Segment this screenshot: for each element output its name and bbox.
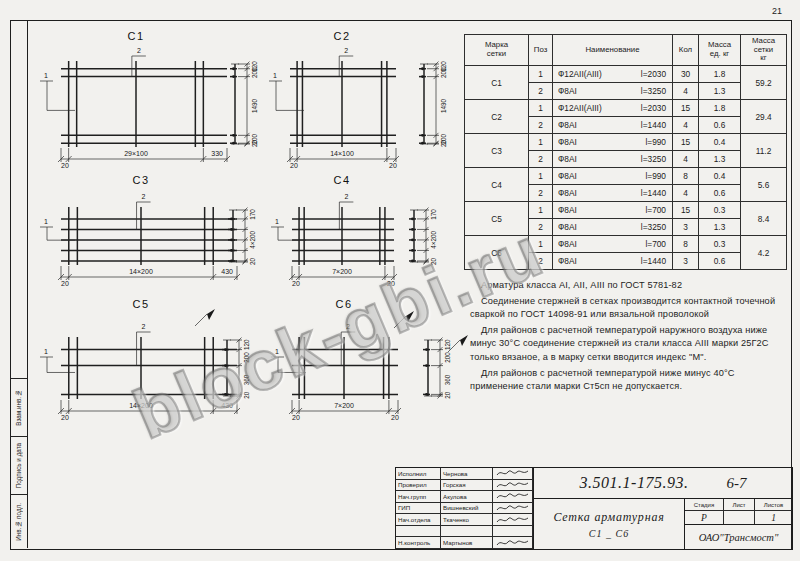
title-block: ИсполнилЧерноваПроверилГорскаяНач.группА… — [395, 467, 793, 550]
signature-icon — [495, 480, 531, 490]
pos-cell: 1 — [529, 100, 553, 117]
unit-mass-cell: 0.4 — [699, 134, 741, 151]
mesh-mass-cell: 11.2 — [741, 134, 787, 168]
note-paragraph: Для районов с расчетной температурой нар… — [470, 324, 788, 365]
column-header: Масса сетки кг — [741, 35, 787, 66]
dim-label: 14×200 — [129, 402, 153, 409]
qty-cell: 8 — [673, 168, 699, 185]
signature-icon — [495, 491, 531, 501]
mesh-title: С6 — [335, 298, 352, 310]
signature-role: Нач.групп — [396, 491, 441, 503]
mesh-drawing-3: С3122014×2004301704×20020 — [35, 170, 265, 292]
weld-symbol-icon — [406, 311, 414, 322]
signature-cell — [493, 480, 533, 492]
note-paragraph: Для районов с расчетной температурой ниж… — [470, 367, 788, 394]
dim-label: 29×100 — [124, 150, 148, 157]
signature-cell — [493, 514, 533, 526]
mark-cell: С2 — [465, 100, 529, 134]
note-paragraph: Соединение стержней в сетках производитс… — [470, 295, 788, 322]
leader-label-2: 2 — [346, 323, 350, 330]
sheet-header: Лист — [724, 499, 755, 510]
dim-label: 1490 — [440, 98, 447, 113]
signature-icon — [495, 468, 531, 478]
mesh-title: С3 — [132, 174, 149, 186]
dim-label: 20 — [61, 280, 69, 287]
dim-label: 20 — [292, 414, 300, 421]
name-cell: Ф8АIl=990 — [553, 168, 673, 185]
unit-mass-cell: 0.6 — [699, 253, 741, 270]
page-number: 21 — [772, 6, 782, 16]
name-cell: Ф8АIl=700 — [553, 236, 673, 253]
signature-cell — [493, 468, 533, 480]
dim-label: 20 — [292, 280, 300, 287]
mesh-drawing-1: С1122029×100330120200149020020 — [35, 26, 265, 176]
pos-cell: 1 — [529, 168, 553, 185]
signature-name: Ткаченко — [441, 514, 493, 526]
mark-cell: С3 — [465, 134, 529, 168]
mark-cell: С1 — [465, 66, 529, 100]
stage-header-row: Стадия Лист Листов — [685, 499, 792, 511]
qty-cell: 4 — [673, 117, 699, 134]
dim-label: 20 — [389, 162, 397, 169]
dim-label: 20 — [61, 162, 69, 169]
dim-label: 20 — [440, 140, 447, 148]
unit-mass-cell: 1.3 — [699, 83, 741, 100]
stamp-label: Инв.№ подл. — [15, 503, 22, 541]
qty-cell: 4 — [673, 83, 699, 100]
column-header: Поз — [529, 35, 553, 66]
stage-header: Стадия — [685, 499, 724, 510]
drawing-title-line2: С1 _ С6 — [589, 528, 629, 539]
mesh-drawing-2: С2122014×10020120200149020020 — [266, 26, 461, 176]
mesh-title: С5 — [132, 298, 149, 310]
dim-label: 4×200 — [249, 231, 256, 249]
organization-name: ОАО"Трансмост" — [685, 525, 792, 549]
note-paragraph: Арматура класса АI, АII, АIII по ГОСТ 57… — [470, 279, 788, 293]
signature-name: Горская — [441, 480, 493, 492]
table-row: С61Ф8АIl=70080.34.2 — [465, 236, 787, 253]
pos-cell: 2 — [529, 253, 553, 270]
signature-name — [441, 526, 493, 538]
qty-cell: 15 — [673, 134, 699, 151]
dim-label: 170 — [430, 209, 437, 220]
mesh-title: С2 — [333, 30, 350, 42]
dim-label: 20 — [290, 162, 298, 169]
dim-label: 200 — [251, 67, 258, 78]
signature-cell — [493, 503, 533, 515]
table-row: С31Ф8АIl=990150.411.2 — [465, 134, 787, 151]
pos-cell: 1 — [529, 202, 553, 219]
leader-label-2: 2 — [142, 193, 146, 200]
weld-symbol-icon — [460, 335, 468, 346]
mesh-drawing-5: С5122014×20043012020036020 — [35, 294, 265, 428]
mesh-mass-cell: 29.4 — [741, 100, 787, 134]
dim-label: 430 — [221, 268, 233, 275]
name-cell: Ф8АIl=3250 — [553, 219, 673, 236]
sheet-value — [724, 511, 755, 524]
column-header: Наименование — [553, 35, 673, 66]
dim-label: 14×200 — [129, 268, 153, 275]
unit-mass-cell: 0.3 — [699, 202, 741, 219]
unit-mass-cell: 0.4 — [699, 168, 741, 185]
table-row: С51Ф8АIl=700150.38.4 — [465, 202, 787, 219]
dim-label: 170 — [249, 209, 256, 220]
dim-label: 20 — [251, 140, 258, 148]
mesh-drawing-6: С612207×2002012020036020 — [266, 294, 476, 428]
leader-label-1: 1 — [275, 348, 279, 355]
signature-icon — [495, 503, 531, 513]
qty-cell: 3 — [673, 219, 699, 236]
unit-mass-cell: 1.8 — [699, 66, 741, 83]
qty-cell: 15 — [673, 100, 699, 117]
leader-label-1: 1 — [44, 72, 48, 79]
column-header: Марка сетки — [465, 35, 529, 66]
weld-symbol-icon — [207, 309, 215, 320]
stage-value: Р — [685, 511, 724, 524]
dim-label: 20 — [387, 280, 395, 287]
qty-cell: 15 — [673, 202, 699, 219]
signature-grid: ИсполнилЧерноваПроверилГорскаяНач.группА… — [396, 468, 534, 549]
signature-role: ГИП — [396, 503, 441, 515]
mesh-title: С4 — [333, 174, 350, 186]
leader-label-2: 2 — [142, 323, 146, 330]
pos-cell: 2 — [529, 151, 553, 168]
signature-role: Нач.отдела — [396, 514, 441, 526]
dim-label: 200 — [444, 352, 451, 363]
signature-role: Исполнил — [396, 468, 441, 480]
mesh-mass-cell: 4.2 — [741, 236, 787, 270]
dim-label: 120 — [444, 339, 451, 350]
stamp-cell-inv: Инв.№ подл. — [10, 494, 27, 549]
unit-mass-cell: 1.3 — [699, 219, 741, 236]
pos-cell: 2 — [529, 117, 553, 134]
name-cell: Ф8АIl=3250 — [553, 83, 673, 100]
leader-label-2: 2 — [344, 47, 348, 54]
mesh-mass-cell: 5.6 — [741, 168, 787, 202]
mark-cell: С6 — [465, 236, 529, 270]
signature-cell — [493, 491, 533, 503]
mesh-mass-cell: 8.4 — [741, 202, 787, 236]
name-cell: Ф8АIl=1440 — [553, 117, 673, 134]
dim-label: 20 — [444, 391, 451, 399]
table-row: С11Ф12АII(АIII)l=2030301.859.2 — [465, 66, 787, 83]
stage-value-row: Р 1 — [685, 511, 792, 525]
signature-icon — [495, 538, 531, 548]
drawing-title-line1: Сетка арматурная — [553, 510, 664, 525]
dim-label: 430 — [221, 402, 233, 409]
dim-label: 4×200 — [430, 231, 437, 249]
dim-label: 360 — [243, 374, 250, 385]
name-cell: Ф8АIl=1440 — [553, 253, 673, 270]
stamp-cell-vzam: Взам.инв.№ — [10, 378, 27, 437]
dim-label: 330 — [211, 150, 223, 157]
qty-cell: 3 — [673, 253, 699, 270]
qty-cell: 4 — [673, 151, 699, 168]
name-cell: Ф12АII(АIII)l=2030 — [553, 100, 673, 117]
leader-label-1: 1 — [273, 72, 277, 79]
dim-label: 20 — [391, 414, 399, 421]
drawing-title: Сетка арматурная С1 _ С6 — [534, 499, 685, 549]
name-cell: Ф8АIl=700 — [553, 202, 673, 219]
dim-label: 1490 — [251, 98, 258, 113]
pos-cell: 2 — [529, 83, 553, 100]
unit-mass-cell: 1.3 — [699, 151, 741, 168]
sheets-total-header: Листов — [755, 499, 792, 510]
signature-role: Проверил — [396, 480, 441, 492]
name-cell: Ф8АIl=3250 — [553, 151, 673, 168]
unit-mass-cell: 0.6 — [699, 185, 741, 202]
dim-label: 20 — [249, 257, 256, 265]
dim-label: 120 — [243, 339, 250, 350]
dim-label: 360 — [444, 374, 451, 385]
signature-name: Мартынов — [441, 537, 493, 549]
stamp-label: Подпись и дата — [15, 443, 22, 488]
dim-label: 20 — [243, 391, 250, 399]
dim-label: 20 — [430, 257, 437, 265]
spec-table: Марка сеткиПозНаименованиеКолМасса ед. к… — [464, 34, 787, 270]
pos-cell: 1 — [529, 134, 553, 151]
dim-label: 20 — [61, 414, 69, 421]
sheet-range: 6-7 — [726, 475, 746, 492]
table-row: С21Ф12АII(АIII)l=2030151.829.4 — [465, 100, 787, 117]
dim-label: 14×100 — [330, 150, 354, 157]
frame-inner-edge — [27, 20, 28, 548]
signature-name: Вишневский — [441, 503, 493, 515]
table-row: С41Ф8АIl=99080.45.6 — [465, 168, 787, 185]
pos-cell: 2 — [529, 185, 553, 202]
signature-name: Чернова — [441, 468, 493, 480]
stamp-label: Взам.инв.№ — [15, 390, 22, 426]
signature-cell — [493, 526, 533, 538]
unit-mass-cell: 1.8 — [699, 100, 741, 117]
stamp-cell-podpis: Подпись и дата — [10, 436, 27, 495]
dim-label: 200 — [440, 67, 447, 78]
column-header: Кол — [673, 35, 699, 66]
signature-role — [396, 526, 441, 538]
leader-label-1: 1 — [275, 218, 279, 225]
drawing-sheet: 21 Взам.инв.№ Подпись и дата Инв.№ подл.… — [0, 0, 800, 561]
qty-cell: 8 — [673, 236, 699, 253]
column-header: Масса ед. кг — [699, 35, 741, 66]
leader-label-1: 1 — [44, 218, 48, 225]
signature-cell — [493, 537, 533, 549]
signature-icon — [495, 515, 531, 525]
signature-name: Акулова — [441, 491, 493, 503]
unit-mass-cell: 0.3 — [699, 236, 741, 253]
dim-label: 7×200 — [334, 402, 354, 409]
name-cell: Ф8АIl=1440 — [553, 185, 673, 202]
mesh-drawing-4: С412207×200201704×20020 — [266, 170, 461, 292]
dim-label: 200 — [243, 352, 250, 363]
name-cell: Ф12АII(АIII)l=2030 — [553, 66, 673, 83]
leader-label-2: 2 — [137, 47, 141, 54]
qty-cell: 30 — [673, 66, 699, 83]
mesh-title: С1 — [127, 30, 144, 42]
name-cell: Ф8АIl=990 — [553, 134, 673, 151]
sheets-total-value: 1 — [755, 511, 792, 524]
mark-cell: С5 — [465, 202, 529, 236]
unit-mass-cell: 0.6 — [699, 117, 741, 134]
dim-label: 7×200 — [332, 268, 352, 275]
leader-label-2: 2 — [344, 193, 348, 200]
table-header-row: Марка сеткиПозНаименованиеКолМасса ед. к… — [465, 35, 787, 66]
doc-number: 3.501.1-175.93. — [580, 474, 689, 492]
signature-role: Н.контроль — [396, 537, 441, 549]
mark-cell: С4 — [465, 168, 529, 202]
pos-cell: 1 — [529, 236, 553, 253]
qty-cell: 4 — [673, 185, 699, 202]
mesh-mass-cell: 59.2 — [741, 66, 787, 100]
pos-cell: 1 — [529, 66, 553, 83]
leader-label-1: 1 — [44, 348, 48, 355]
doc-number-row: 3.501.1-175.93. 6-7 — [534, 468, 792, 499]
pos-cell: 2 — [529, 219, 553, 236]
notes-block: Арматура класса АI, АII, АIII по ГОСТ 57… — [470, 279, 788, 396]
